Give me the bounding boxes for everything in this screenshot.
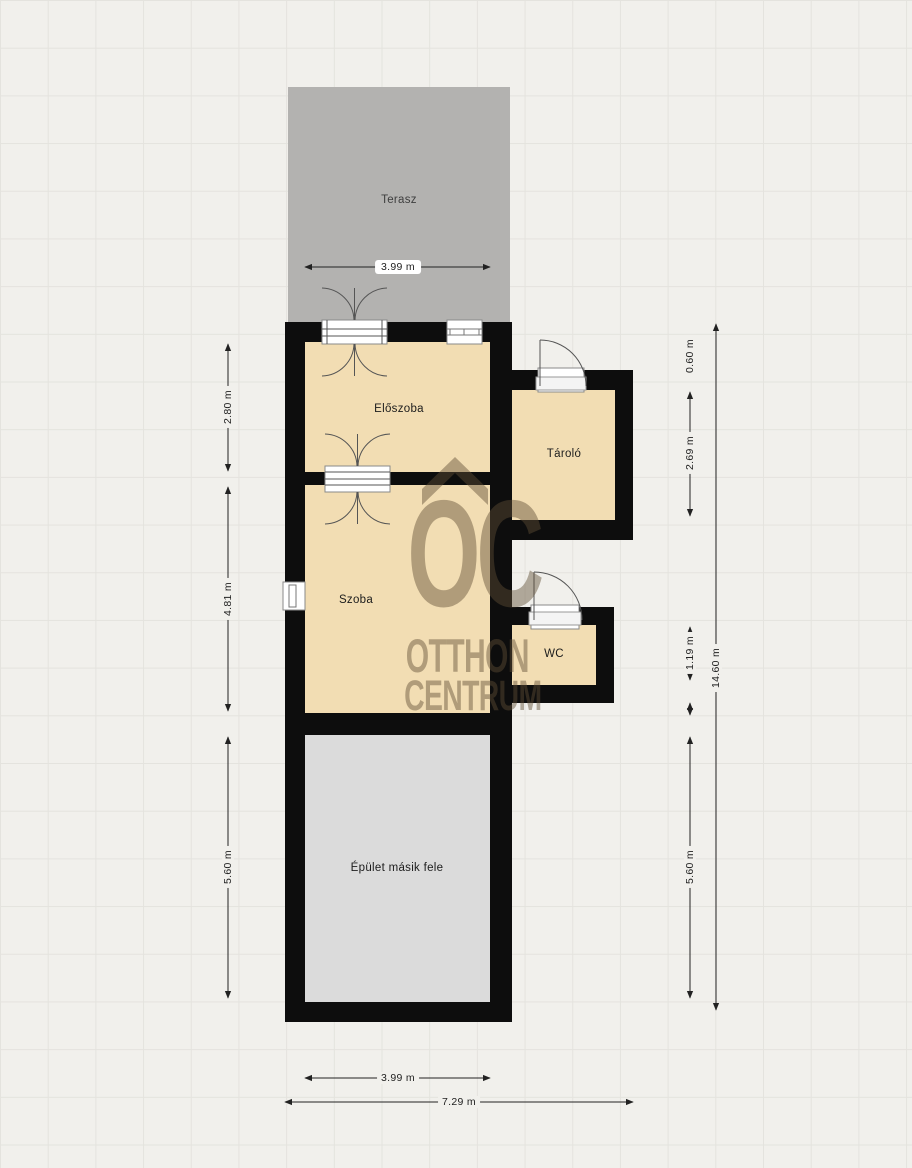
dim-terrace-width: 3.99 m — [375, 260, 421, 274]
dim-total-width: 7.29 m — [438, 1096, 480, 1108]
dim-tarolo-height: 2.69 m — [684, 432, 696, 474]
door-eloszoba-szoba-icon — [325, 434, 390, 524]
dim-total-height: 14.60 m — [710, 644, 722, 692]
label-terasz: Terasz — [381, 194, 417, 206]
dim-lower-left-height: 5.60 m — [222, 846, 234, 888]
plan-overlay — [0, 0, 912, 1168]
floor-plan-canvas: OC OTTHON CENTRUM Terasz Előszoba Tároló… — [0, 0, 912, 1168]
label-epulet-masik-fele: Épület másik fele — [351, 862, 444, 874]
label-szoba: Szoba — [339, 594, 373, 606]
door-wc-icon — [529, 572, 582, 629]
label-tarolo: Tároló — [547, 448, 581, 460]
dim-wc-height: 1.19 m — [684, 632, 696, 674]
dim-eloszoba-height: 2.80 m — [222, 386, 234, 428]
label-eloszoba: Előszoba — [374, 403, 424, 415]
door-terrace-icon — [322, 288, 387, 376]
window-top-icon — [447, 320, 482, 344]
dim-bottom-width: 3.99 m — [377, 1072, 419, 1084]
dim-szoba-height: 4.81 m — [222, 578, 234, 620]
label-wc: WC — [544, 648, 564, 660]
dimension-lines — [228, 267, 716, 1102]
door-tarolo-icon — [536, 340, 586, 392]
dim-lower-right-height: 5.60 m — [684, 846, 696, 888]
dim-tarolo-top-offset: 0.60 m — [684, 335, 696, 377]
window-left-icon — [283, 582, 305, 610]
